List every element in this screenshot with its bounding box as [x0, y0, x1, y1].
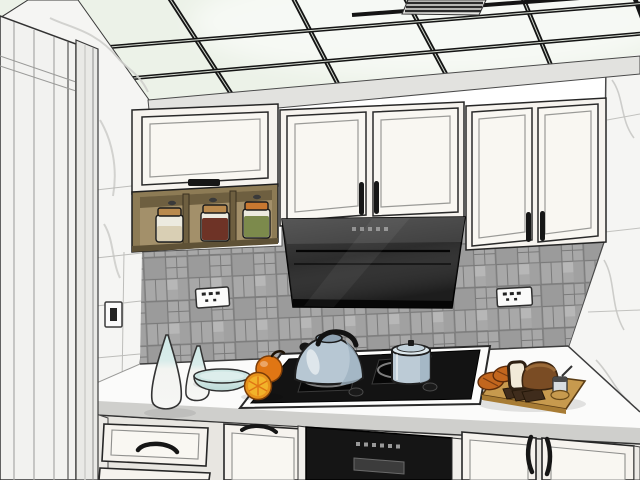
vase-shadow	[144, 408, 196, 418]
switch-toggle	[110, 308, 117, 321]
small-bowl	[551, 391, 569, 400]
outlet-left	[195, 287, 229, 308]
shelf-divider-2	[230, 191, 236, 243]
spice-jar-beige	[156, 208, 183, 242]
upper-cabinet-middle	[280, 102, 464, 226]
lower-door-a-panel	[470, 440, 528, 480]
teal-bowl	[194, 369, 250, 391]
cooktop-knob-left	[349, 388, 363, 396]
outlet-right	[497, 287, 533, 307]
cooktop-knob-right	[423, 383, 437, 391]
middle-door-right-handle	[374, 181, 379, 214]
middle-cabinet-door-right	[373, 108, 458, 216]
ceiling-vent-grille	[402, 0, 486, 15]
pot-lid-knob	[408, 340, 414, 346]
kitchen-render	[0, 0, 640, 480]
spice-jar-green	[243, 202, 270, 238]
drawer-stack	[99, 424, 210, 480]
oven-right-stile	[452, 438, 462, 480]
middle-cabinet-door-left	[287, 112, 366, 221]
oven-left-stile	[298, 426, 306, 480]
door-slab	[0, 16, 76, 480]
right-cabinet-door-right	[538, 104, 598, 242]
spice-shelf	[132, 184, 278, 252]
flip-door-handle	[188, 179, 220, 186]
spice-jar-red	[201, 205, 229, 241]
middle-door-left-handle	[359, 182, 364, 215]
right-door-right-handle	[540, 211, 545, 241]
orange-highlight	[260, 361, 268, 367]
orange-half	[245, 373, 272, 400]
bowl-inner	[200, 372, 244, 381]
upper-cabinet-right	[466, 98, 606, 250]
lower-door-right-a	[462, 432, 536, 480]
upper-cabinet-left	[132, 104, 278, 252]
lower-door-middle	[224, 424, 302, 480]
right-cabinet-door-left	[472, 108, 532, 246]
door-casing	[76, 40, 98, 480]
cabinet-right-sliver	[634, 446, 640, 480]
left-door-group	[0, 16, 98, 480]
lower-door-middle-panel	[232, 433, 294, 480]
range-hood	[282, 217, 465, 308]
right-door-left-handle	[526, 212, 531, 242]
shelf-divider-1	[183, 194, 189, 246]
pot	[392, 340, 430, 384]
lower-door-right-b	[542, 438, 634, 480]
light-switch	[105, 302, 122, 327]
